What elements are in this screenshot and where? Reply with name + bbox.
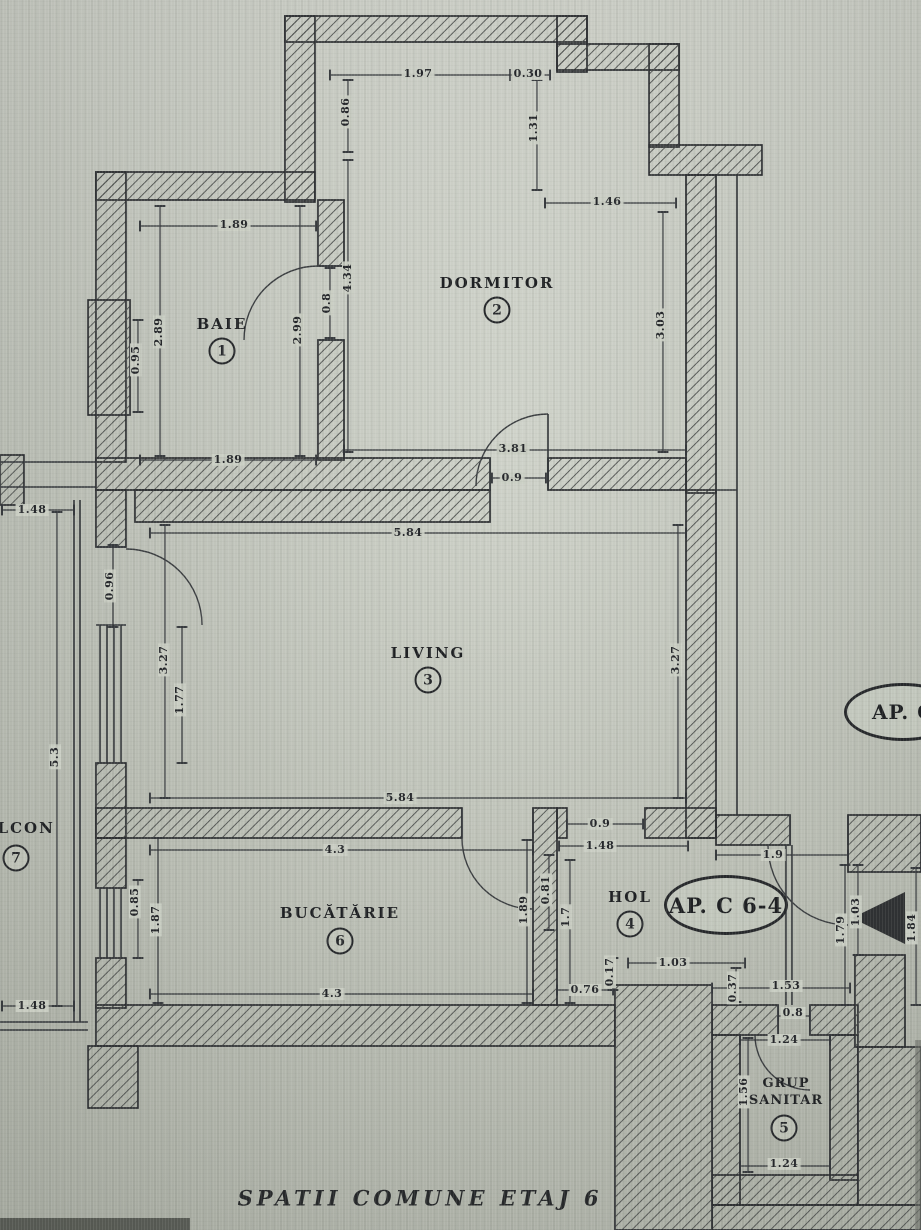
dim-label: 3.03 bbox=[655, 309, 667, 342]
room-number-living: 3 bbox=[415, 667, 442, 694]
dim-label: 1.46 bbox=[591, 196, 624, 208]
room-number-baie: 1 bbox=[209, 338, 236, 365]
walls bbox=[0, 16, 921, 1230]
plan-caption: SPATII COMUNE ETAJ 6 bbox=[238, 1186, 603, 1211]
room-label-balcon: BALCON bbox=[0, 819, 55, 837]
room-label-dormitor: DORMITOR bbox=[440, 274, 555, 292]
room-number-hol: 4 bbox=[617, 911, 644, 938]
dim-label: 1.84 bbox=[906, 912, 918, 945]
dim-label: 0.8 bbox=[781, 1007, 806, 1019]
room-label-grup-sanitar: GRUP SANITAR bbox=[731, 1076, 841, 1110]
room-label-bucatarie: BUCĂTĂRIE bbox=[280, 904, 400, 922]
dim-label: 1.89 bbox=[212, 454, 245, 466]
dim-label: 1.53 bbox=[770, 980, 803, 992]
dim-label: 0.86 bbox=[340, 96, 352, 129]
neighbor-apartment-badge-text: AP. C bbox=[872, 700, 921, 724]
room-number-bucatarie: 6 bbox=[327, 928, 354, 955]
dim-label: 0.96 bbox=[104, 570, 116, 603]
dim-label: 4.3 bbox=[320, 988, 345, 1000]
dim-label: 1.48 bbox=[16, 504, 49, 516]
dim-label: 1.48 bbox=[16, 1000, 49, 1012]
dim-label: 1.31 bbox=[528, 112, 540, 145]
dim-label: 1.97 bbox=[402, 68, 435, 80]
dim-label: 1.24 bbox=[768, 1158, 801, 1170]
dim-label: 3.81 bbox=[497, 443, 530, 455]
dim-label: 0.76 bbox=[569, 984, 602, 996]
photo-edge bbox=[0, 1218, 190, 1230]
dim-label: 1.79 bbox=[835, 914, 847, 947]
dim-label: 1.03 bbox=[850, 896, 862, 929]
dim-label: 1.9 bbox=[761, 849, 786, 861]
dim-label: 1.48 bbox=[584, 840, 617, 852]
dim-label: 1.24 bbox=[768, 1034, 801, 1046]
room-label-hol: HOL bbox=[608, 888, 652, 906]
dim-label: 3.27 bbox=[670, 644, 682, 677]
dim-label: 0.95 bbox=[130, 344, 142, 377]
room-label-baie: BAIE bbox=[197, 315, 248, 333]
dim-label: 1.89 bbox=[518, 894, 530, 927]
dim-label: 3.27 bbox=[158, 644, 170, 677]
dim-label: 0.81 bbox=[540, 874, 552, 907]
dim-label: 5.84 bbox=[384, 792, 417, 804]
dim-label: 0.85 bbox=[129, 886, 141, 919]
dim-label: 0.8 bbox=[321, 291, 333, 316]
apartment-badge-text: AP. C 6-4 bbox=[669, 893, 783, 918]
door-arcs bbox=[126, 266, 848, 1090]
floorplan-scan: 1.97 0.30 0.86 4.34 1.31 1.46 3.03 1.89 … bbox=[0, 0, 921, 1230]
dim-label: 2.89 bbox=[153, 316, 165, 349]
dim-label: 0.9 bbox=[588, 818, 613, 830]
room-label-living: LIVING bbox=[391, 644, 466, 662]
dim-label: 5.84 bbox=[392, 527, 425, 539]
dim-label: 0.17 bbox=[604, 956, 616, 989]
dim-label: 1.87 bbox=[150, 904, 162, 937]
photo-edge bbox=[915, 1040, 921, 1230]
dim-label: 4.34 bbox=[342, 262, 354, 295]
dim-label: 0.37 bbox=[727, 972, 739, 1005]
dim-label: 1.89 bbox=[218, 219, 251, 231]
room-number-balcon: 7 bbox=[3, 845, 30, 872]
dim-label: 0.9 bbox=[500, 472, 525, 484]
dim-label: 1.77 bbox=[174, 684, 186, 717]
dim-label: 5.3 bbox=[49, 745, 61, 770]
dim-label: 2.99 bbox=[292, 314, 304, 347]
dim-label: 0.30 bbox=[512, 68, 545, 80]
dim-label: 1.7 bbox=[560, 905, 572, 930]
room-number-grup-sanitar: 5 bbox=[771, 1115, 798, 1142]
apartment-badge: AP. C 6-4 bbox=[664, 875, 788, 935]
dim-label: 1.03 bbox=[657, 957, 690, 969]
dim-label: 4.3 bbox=[323, 844, 348, 856]
room-number-dormitor: 2 bbox=[484, 297, 511, 324]
